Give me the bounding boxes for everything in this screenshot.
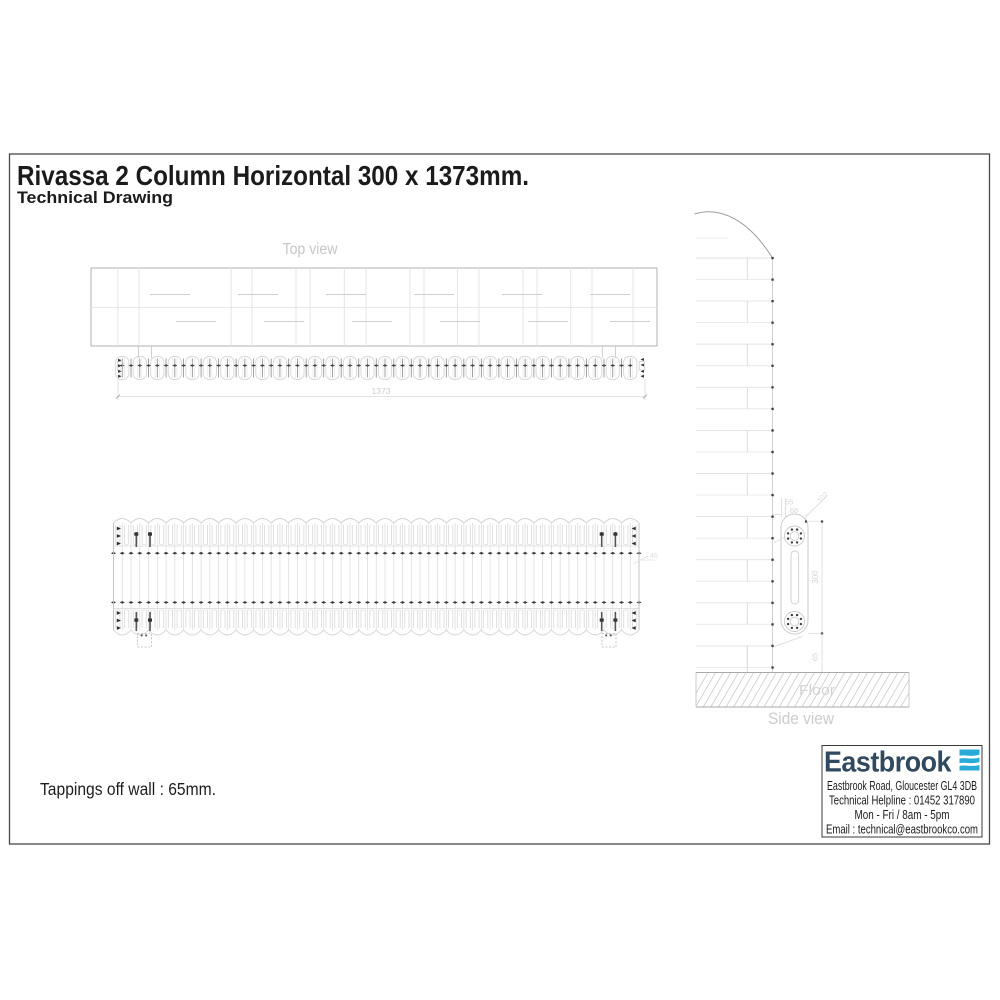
svg-text:Side view: Side view xyxy=(768,710,834,728)
svg-text:Eastbrook: Eastbrook xyxy=(824,747,952,779)
svg-text:Technical Drawing: Technical Drawing xyxy=(17,188,173,207)
svg-text:Rivassa 2 Column Horizontal 30: Rivassa 2 Column Horizontal 300 x 1373mm… xyxy=(17,160,529,191)
svg-text:68: 68 xyxy=(790,506,798,515)
svg-text:Email : technical@eastbrookco.: Email : technical@eastbrookco.com xyxy=(826,823,978,837)
svg-text:65: 65 xyxy=(811,653,820,661)
svg-text:Mon - Fri / 8am - 5pm: Mon - Fri / 8am - 5pm xyxy=(855,808,950,822)
svg-text:Floor: Floor xyxy=(799,682,835,699)
svg-text:Top view: Top view xyxy=(283,241,339,258)
svg-text:46: 46 xyxy=(650,553,658,560)
svg-text:Tappings off wall : 65mm.: Tappings off wall : 65mm. xyxy=(40,779,216,799)
svg-text:300: 300 xyxy=(811,570,820,584)
svg-text:1373: 1373 xyxy=(372,386,391,396)
svg-text:Technical Helpline : 01452 317: Technical Helpline : 01452 317890 xyxy=(829,794,975,808)
svg-text:Eastbrook Road, Gloucester GL4: Eastbrook Road, Gloucester GL4 3DB xyxy=(827,779,977,793)
